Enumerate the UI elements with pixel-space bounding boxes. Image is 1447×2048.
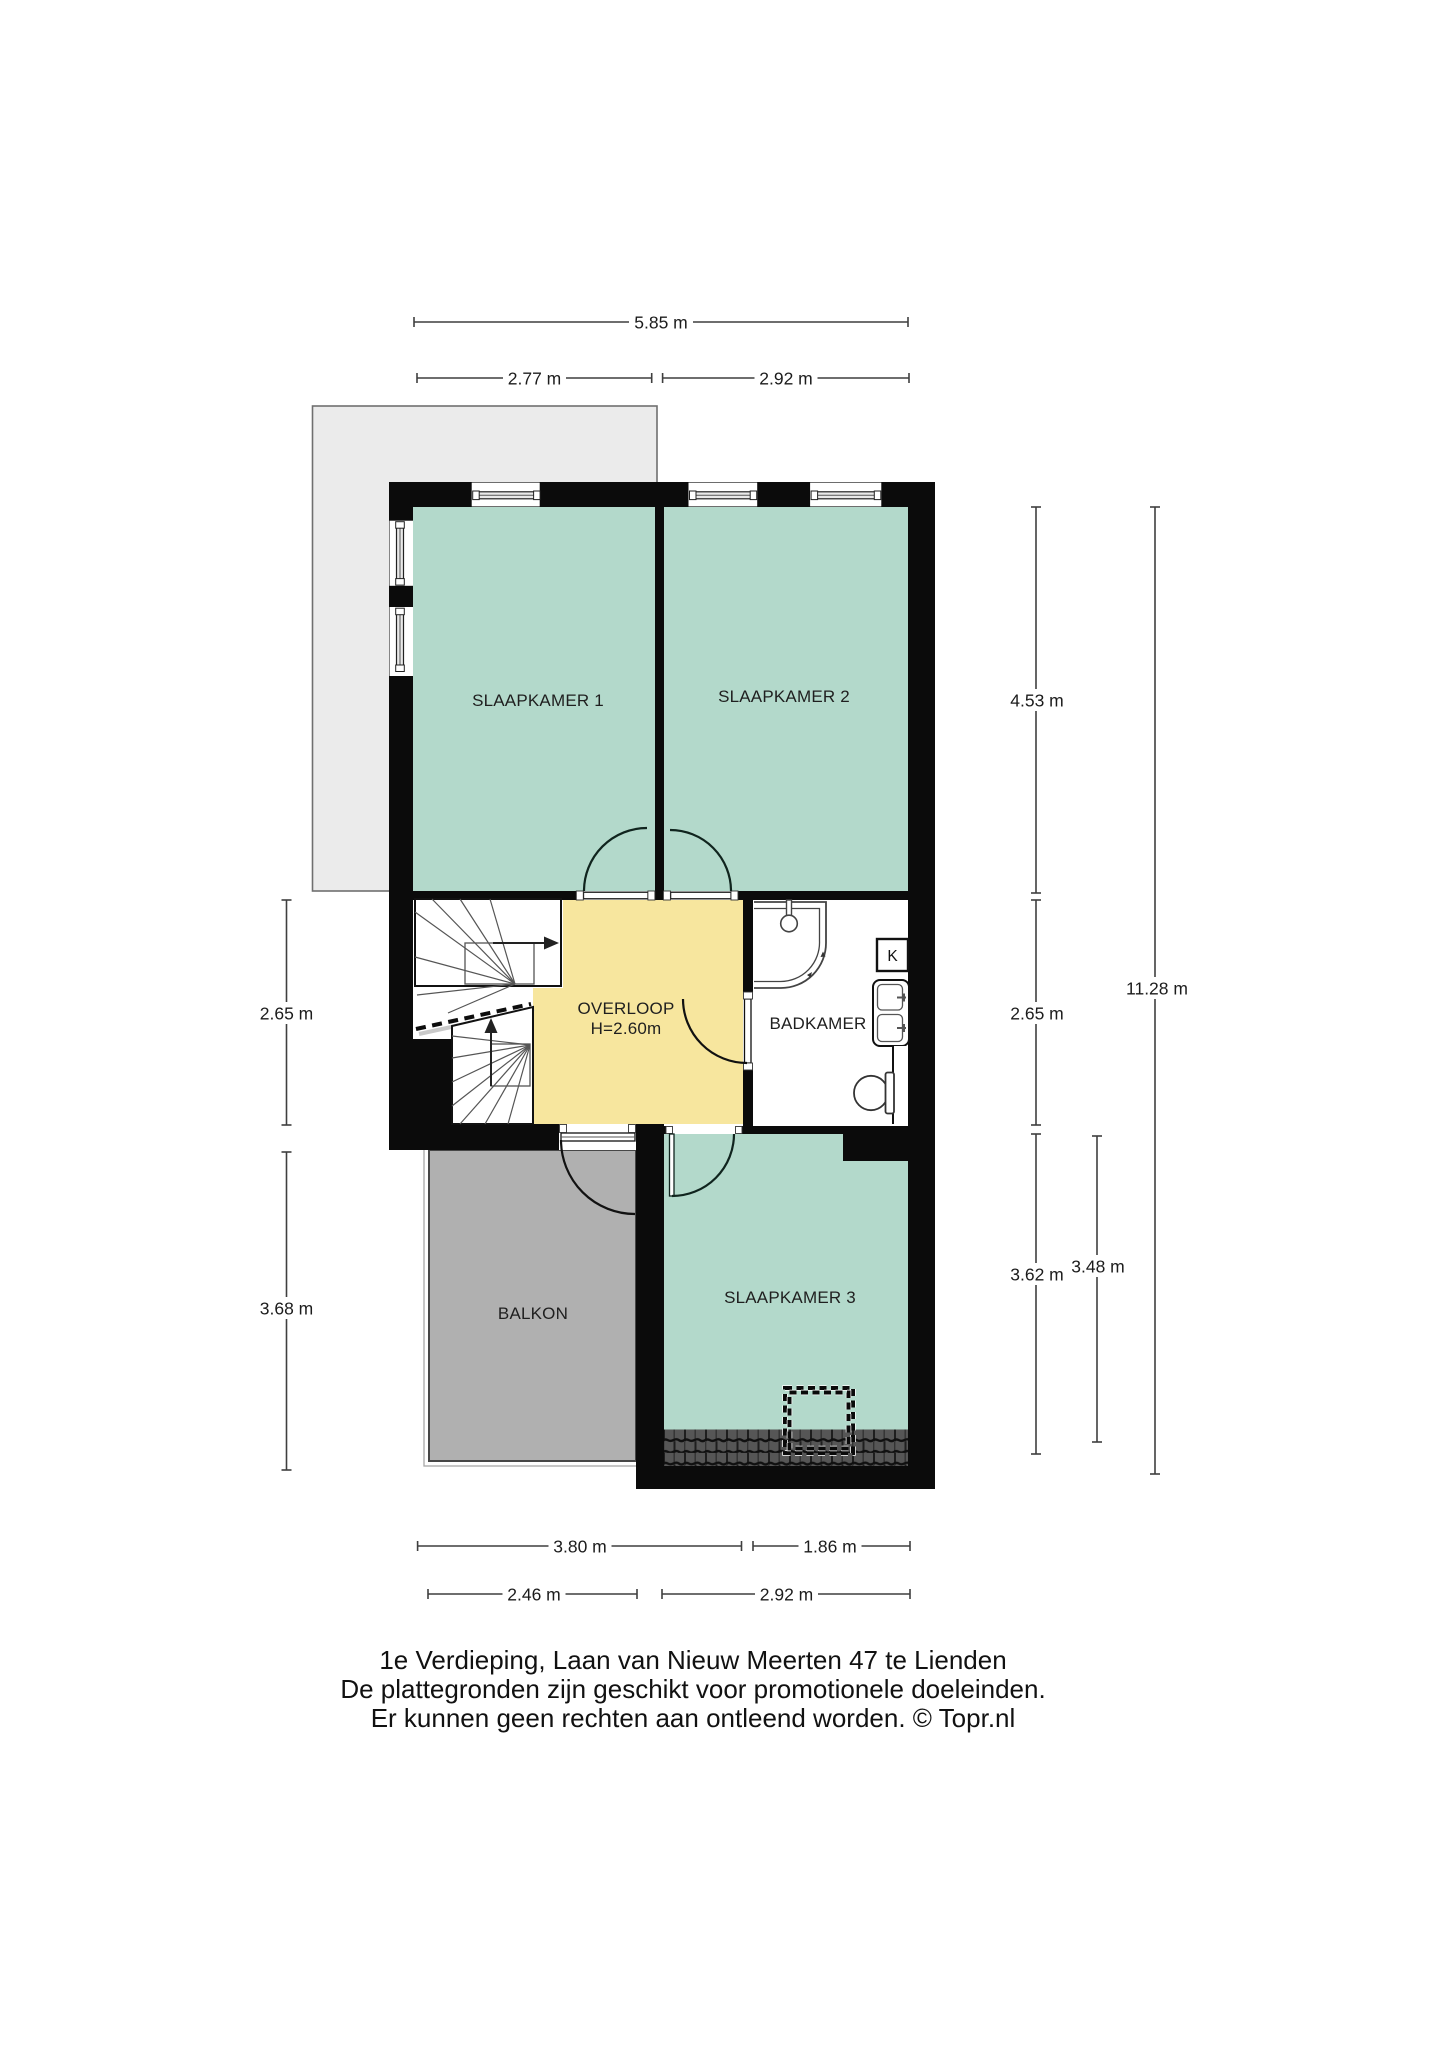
svg-text:3.62 m: 3.62 m [1010,1265,1064,1285]
svg-text:2.92 m: 2.92 m [760,1585,814,1605]
svg-text:1.86 m: 1.86 m [803,1537,857,1557]
svg-text:SLAAPKAMER 2: SLAAPKAMER 2 [718,687,850,706]
svg-text:2.77 m: 2.77 m [508,369,562,389]
svg-text:1e Verdieping, Laan van Nieuw: 1e Verdieping, Laan van Nieuw Meerten 47… [379,1645,1006,1675]
svg-text:H=2.60m: H=2.60m [591,1019,662,1038]
svg-text:2.92 m: 2.92 m [759,369,813,389]
svg-text:BADKAMER: BADKAMER [769,1014,866,1033]
svg-text:11.28 m: 11.28 m [1126,979,1188,999]
svg-text:K: K [887,948,898,965]
svg-text:2.65 m: 2.65 m [1010,1004,1064,1024]
svg-text:2.65 m: 2.65 m [260,1004,314,1024]
svg-text:BALKON: BALKON [498,1304,568,1323]
svg-text:De plattegronden zijn geschikt: De plattegronden zijn geschikt voor prom… [340,1674,1045,1704]
svg-text:3.80 m: 3.80 m [553,1537,607,1557]
svg-text:3.48 m: 3.48 m [1071,1257,1125,1277]
svg-text:5.85 m: 5.85 m [634,313,688,333]
svg-text:SLAAPKAMER 3: SLAAPKAMER 3 [724,1288,856,1307]
svg-text:OVERLOOP: OVERLOOP [577,999,674,1018]
svg-text:SLAAPKAMER 1: SLAAPKAMER 1 [472,691,604,710]
svg-text:3.68 m: 3.68 m [260,1299,314,1319]
svg-text:4.53 m: 4.53 m [1010,691,1064,711]
svg-text:Er kunnen geen rechten aan ont: Er kunnen geen rechten aan ontleend word… [371,1703,1016,1733]
svg-text:2.46 m: 2.46 m [507,1585,561,1605]
